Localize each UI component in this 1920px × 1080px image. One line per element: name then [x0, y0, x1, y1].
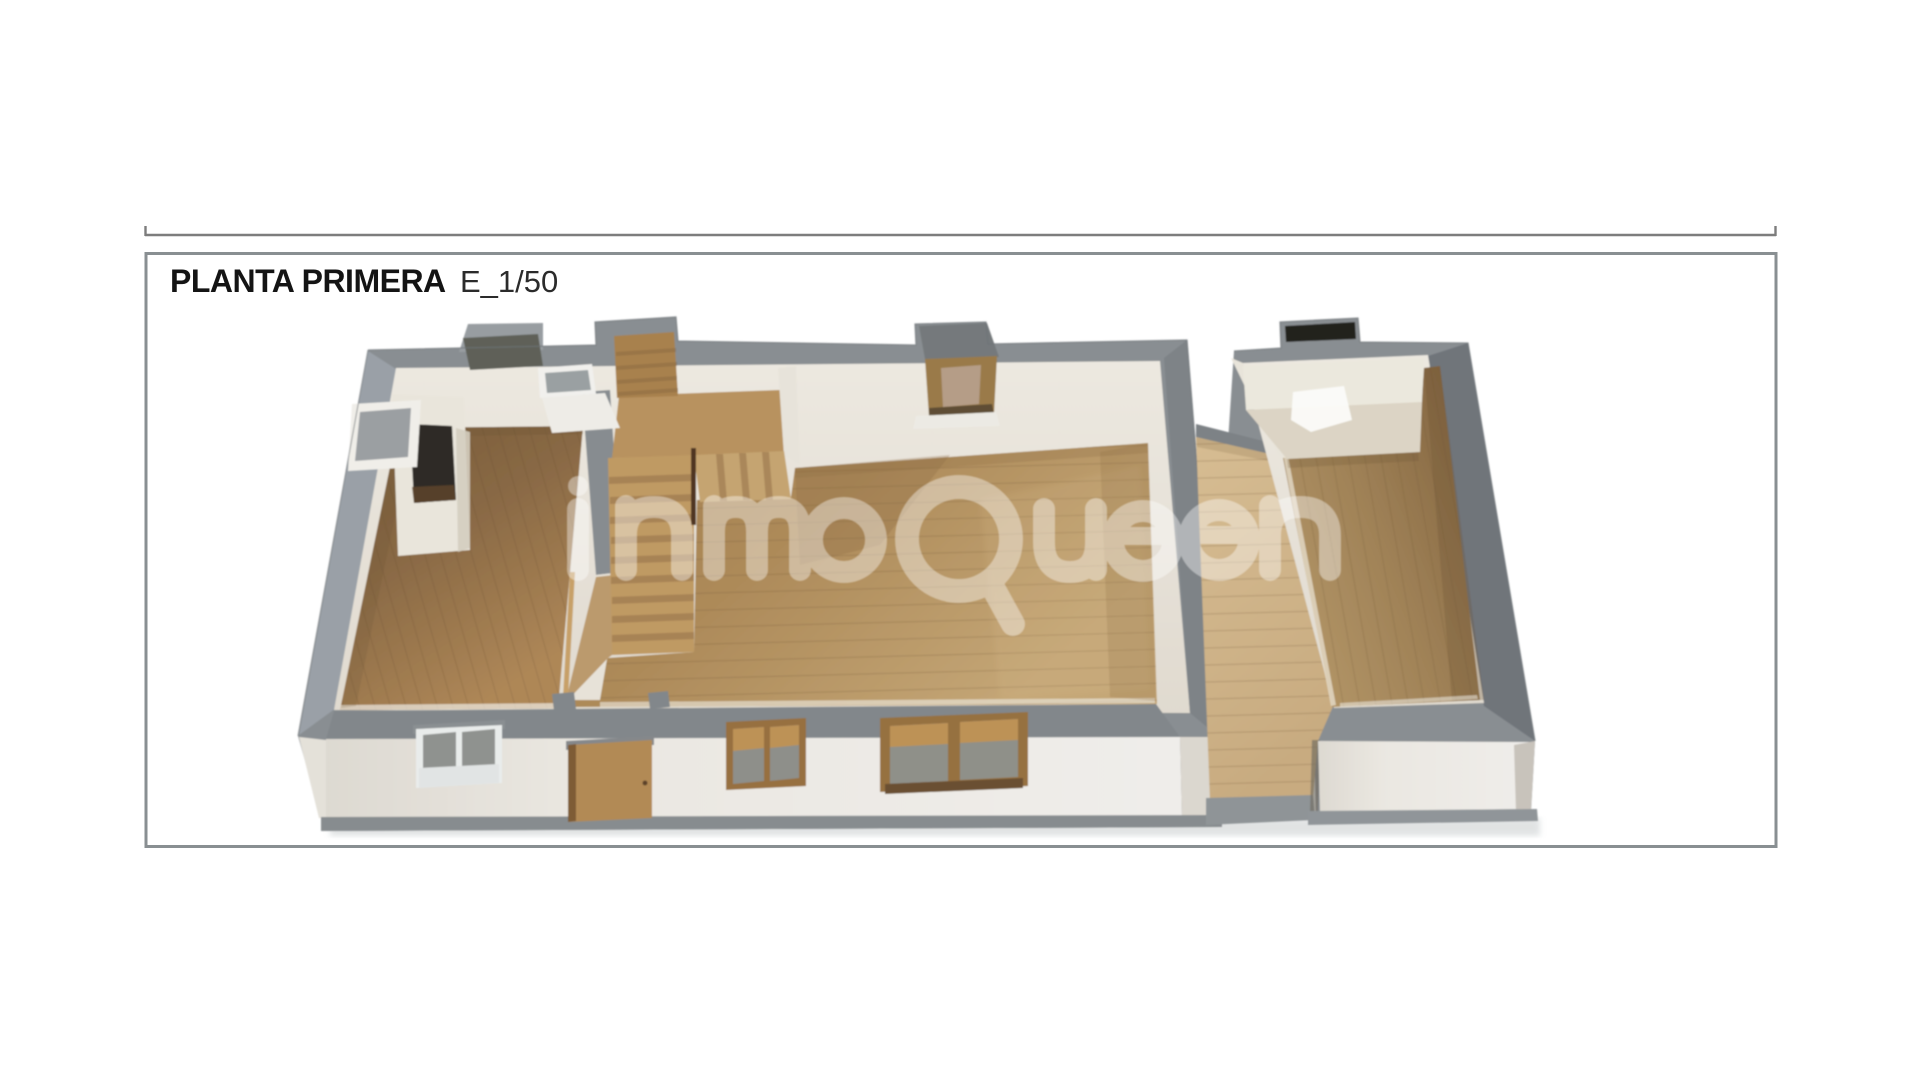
svg-text:E_1/50: E_1/50: [460, 264, 558, 299]
svg-text:PLANTA PRIMERA: PLANTA PRIMERA: [170, 263, 446, 299]
